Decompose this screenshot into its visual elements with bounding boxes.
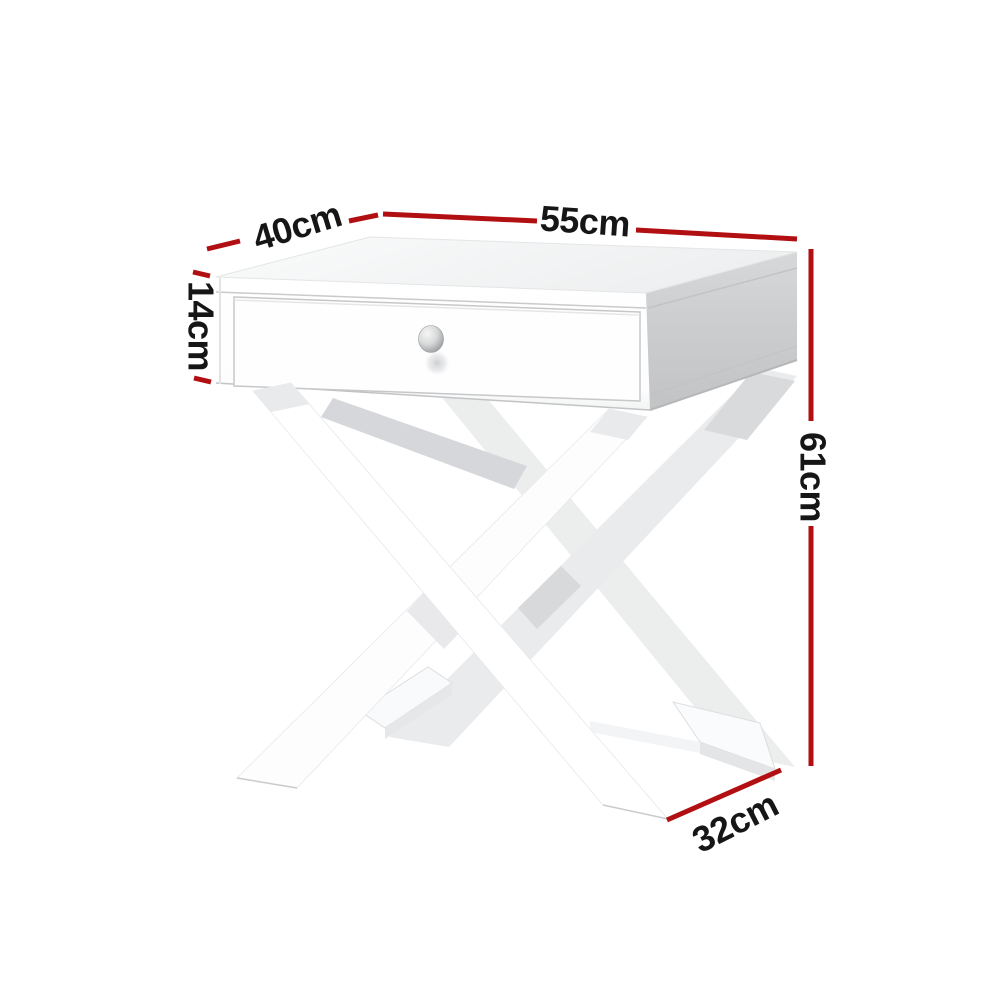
dim-40cm-dash-2 — [349, 215, 378, 221]
dim-label-total-height: 61cm — [793, 432, 834, 522]
dim-55cm-dash-1 — [383, 214, 537, 221]
product-dimension-image: 40cm 55cm 14cm 61cm 32cm — [0, 0, 1000, 1000]
dim-40cm-dash-1 — [207, 241, 240, 249]
dim-label-foot-depth: 32cm — [686, 783, 785, 860]
knob-shadow — [423, 349, 451, 377]
drawer-unit — [216, 237, 797, 410]
scene-canvas: 40cm 55cm 14cm 61cm 32cm — [0, 0, 1000, 1000]
dim-14cm-tick-bottom — [194, 378, 211, 382]
dim-55cm-dash-2 — [636, 230, 797, 239]
dim-14cm-tick-top — [193, 272, 210, 276]
dim-label-width: 55cm — [539, 197, 632, 244]
drawer-knob — [419, 326, 444, 353]
dim-label-drawer-height: 14cm — [181, 281, 222, 371]
